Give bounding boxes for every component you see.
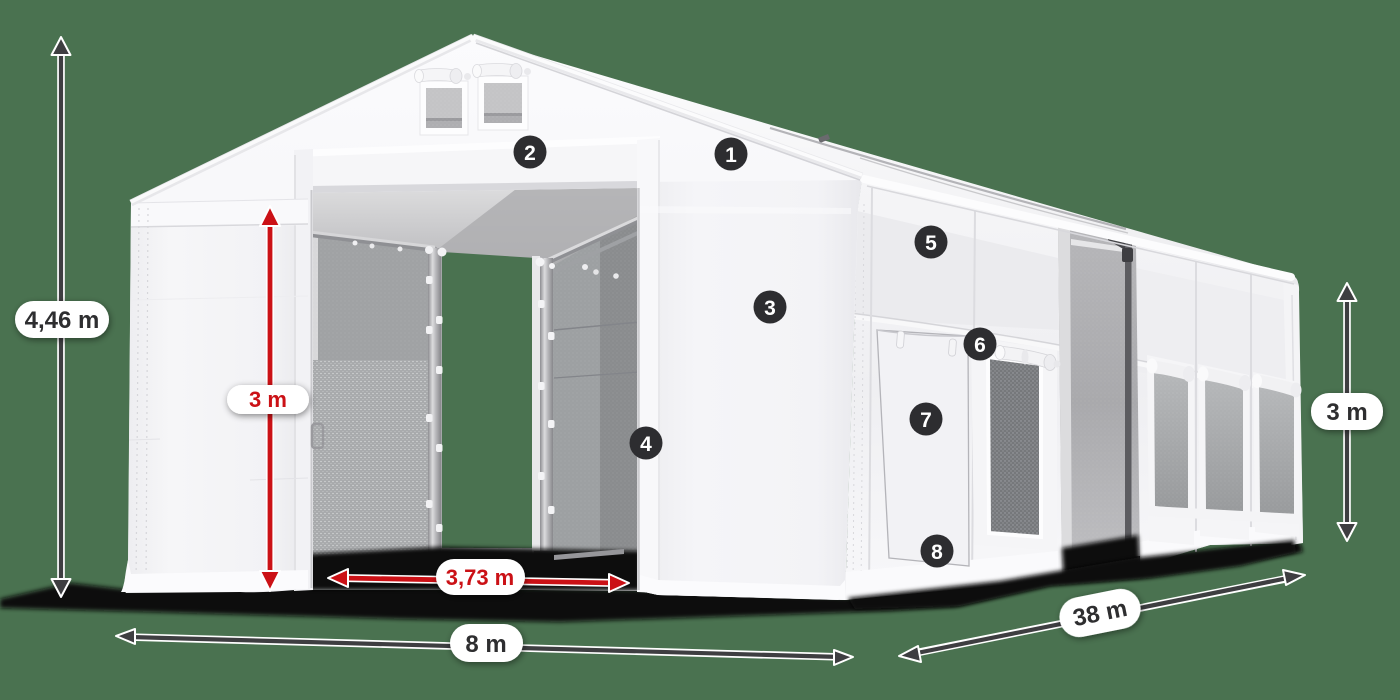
svg-text:8 m: 8 m bbox=[465, 631, 506, 658]
svg-text:5: 5 bbox=[925, 232, 937, 255]
svg-text:3: 3 bbox=[764, 297, 776, 320]
svg-text:2: 2 bbox=[524, 142, 536, 165]
svg-text:6: 6 bbox=[974, 334, 986, 357]
svg-text:4,46 m: 4,46 m bbox=[25, 307, 100, 334]
svg-text:7: 7 bbox=[920, 409, 932, 432]
svg-text:3 m: 3 m bbox=[1326, 399, 1367, 426]
svg-text:3,73 m: 3,73 m bbox=[446, 565, 515, 590]
svg-text:3 m: 3 m bbox=[249, 387, 287, 412]
svg-text:1: 1 bbox=[725, 144, 737, 167]
svg-text:4: 4 bbox=[640, 433, 652, 456]
svg-text:8: 8 bbox=[931, 541, 943, 564]
